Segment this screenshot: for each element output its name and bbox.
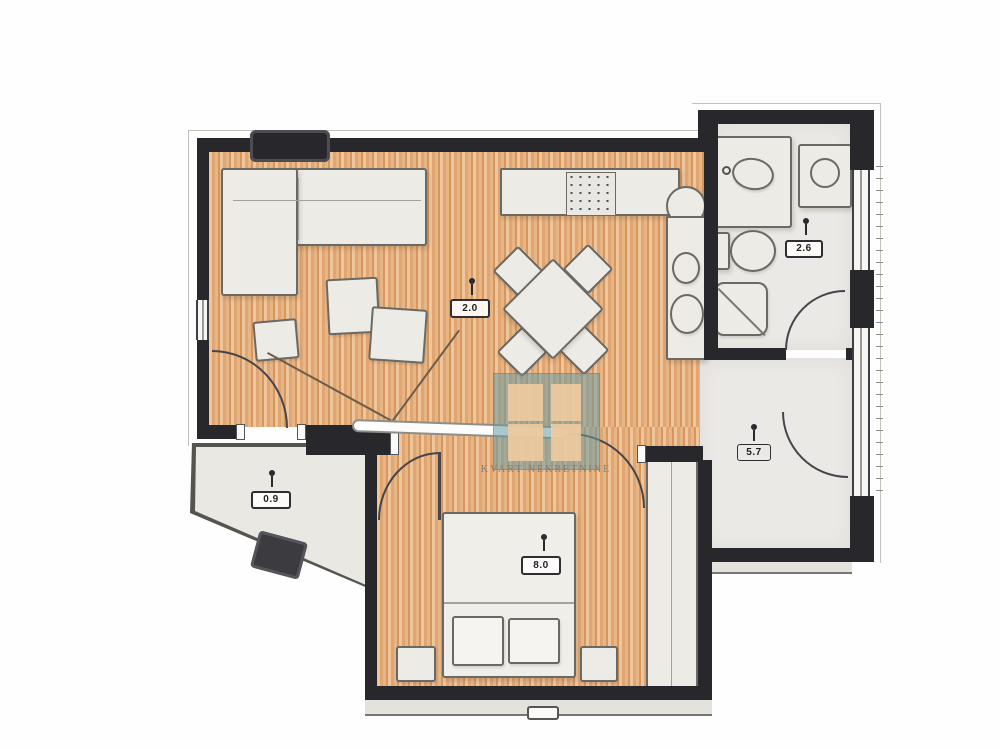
sofa-chaise [221,168,298,296]
door-jamb [297,424,306,440]
side-table [252,318,299,362]
window-left [196,300,209,340]
door-leaf-bedroom [438,452,441,520]
area-label-living: 2.0 [450,299,490,318]
logo-pane-icon [551,424,581,461]
bed-seam [444,602,574,604]
area-label-bathroom: 2.6 [785,240,823,258]
wall-corridor [645,446,703,462]
wall-kitchen-bathroom [704,124,718,360]
logo-pane-icon [551,384,581,421]
sofa-seam [233,200,421,201]
watermark-logo [493,373,600,470]
wall-entry-bottom [700,548,872,562]
person-marker-icon [266,470,278,488]
logo-pane-icon [508,384,543,421]
wall-pier-right-bottom [850,496,874,562]
watermark-brand-text: KVART NEKRETNINE [466,464,626,475]
person-marker-icon [800,218,812,236]
window-right-lower [852,328,870,496]
wall-bedroom-bottom [365,686,712,700]
area-label-terrace: 0.9 [251,491,291,509]
wall-pier-right-middle [850,270,874,328]
wardrobe-seam [671,460,672,688]
wall-left-upper [197,138,209,300]
wall-pier-right-top [850,110,874,170]
kitchen-appliance [670,294,704,334]
window-right-upper [852,170,870,270]
wall-pier-top [250,130,330,162]
floor-plan-canvas: 2.0 2.6 8.0 0.9 5.7 KVART NEKRETNINE [0,0,1000,749]
area-label-bedroom: 8.0 [521,556,561,575]
vent [527,706,559,720]
pillow [508,618,560,664]
foundation-strip-entry [712,562,852,574]
wardrobe [646,458,698,690]
door-jamb [637,445,646,463]
wall-bathroom-bottom [712,348,786,360]
person-marker-icon [538,534,550,552]
kitchen-counter-side [666,216,706,360]
washing-machine-drum [810,158,840,188]
outline-top-right [692,103,880,104]
pillow [452,616,504,666]
wall-bedroom-left [365,425,377,700]
armchair [368,306,428,364]
shower-tray [714,282,768,336]
wall-bedroom-right [698,460,712,700]
sofa-seam-vertical [298,178,299,240]
wall-top-bathroom [698,110,874,124]
nightstand [580,646,618,682]
kitchen-appliance [672,252,700,284]
faucet [722,166,731,175]
logo-pane-icon [508,424,543,461]
stove [566,172,616,216]
outline-left [188,130,189,446]
toilet [730,230,776,272]
nightstand [396,646,436,682]
area-label-hallway: 5.7 [737,444,771,461]
window-hatch-marks [876,166,883,502]
person-marker-icon [748,424,760,442]
person-marker-icon [466,278,478,296]
